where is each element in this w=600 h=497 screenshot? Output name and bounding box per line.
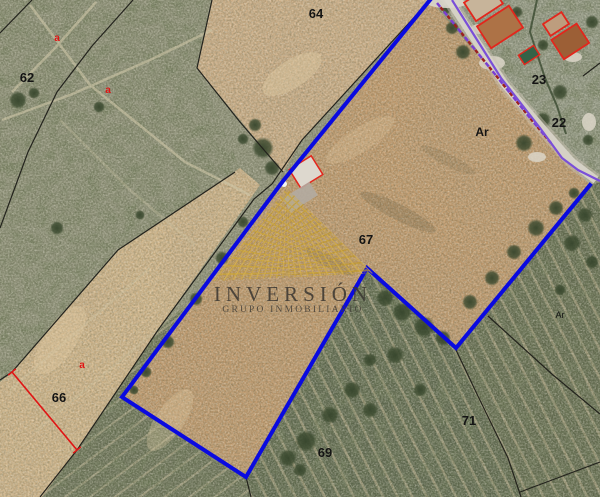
aerial-map: 62 64 23 22 Ar Ar 67 66 69 71 a a a INVE… (0, 0, 600, 497)
parcel-label-23: 23 (532, 72, 546, 87)
subparcel-a-3: a (79, 360, 85, 371)
parcel-label-22: 22 (552, 115, 566, 130)
watermark-logo (213, 186, 373, 281)
parcel-label-69: 69 (318, 445, 332, 460)
subparcel-a-2: a (105, 85, 111, 96)
parcel-label-71: 71 (462, 413, 476, 428)
parcel-label-66: 66 (52, 390, 66, 405)
logo-fan-top (213, 186, 373, 281)
watermark-title: INVERSIÓN (198, 282, 388, 307)
parcel-label-64: 64 (309, 6, 324, 21)
parcel-label-62: 62 (20, 70, 34, 85)
label-ar-small: Ar (556, 310, 565, 320)
label-ar-large: Ar (475, 125, 489, 139)
watermark-subtitle: GRUPO INMOBILIARIO (193, 305, 393, 315)
subparcel-a-1: a (54, 33, 60, 44)
